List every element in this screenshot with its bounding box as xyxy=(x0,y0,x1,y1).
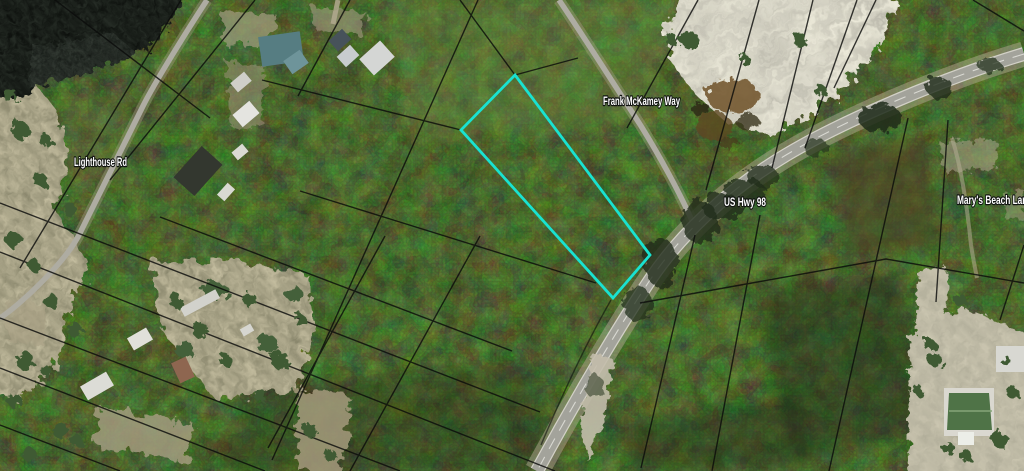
svg-text:Mary's Beach Lane: Mary's Beach Lane xyxy=(957,195,1024,207)
svg-text:Frank McKamey Way: Frank McKamey Way xyxy=(603,96,680,108)
svg-text:US Hwy 98: US Hwy 98 xyxy=(724,197,766,209)
svg-text:Lighthouse Rd: Lighthouse Rd xyxy=(74,157,127,169)
